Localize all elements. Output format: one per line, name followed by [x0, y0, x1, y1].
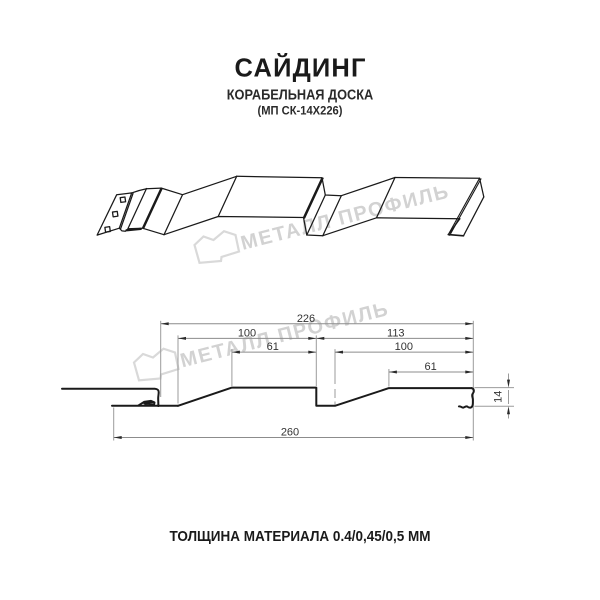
svg-text:МЕТАЛЛ ПРОФИЛЬ: МЕТАЛЛ ПРОФИЛЬ	[178, 298, 390, 372]
svg-text:14: 14	[493, 391, 505, 403]
svg-text:КОРАБЕЛЬНАЯ ДОСКА: КОРАБЕЛЬНАЯ ДОСКА	[227, 88, 374, 104]
svg-text:61: 61	[424, 361, 436, 373]
svg-text:226: 226	[297, 313, 315, 325]
svg-text:ТОЛЩИНА МАТЕРИАЛА 0.4/0,45/0,5: ТОЛЩИНА МАТЕРИАЛА 0.4/0,45/0,5 ММ	[170, 529, 431, 545]
svg-text:САЙДИНГ: САЙДИНГ	[235, 53, 366, 83]
svg-text:61: 61	[267, 341, 279, 353]
svg-text:113: 113	[387, 327, 405, 339]
svg-text:260: 260	[281, 427, 299, 439]
svg-text:100: 100	[395, 341, 413, 353]
svg-text:(МП СК-14Х226): (МП СК-14Х226)	[258, 104, 343, 118]
svg-text:100: 100	[238, 327, 256, 339]
